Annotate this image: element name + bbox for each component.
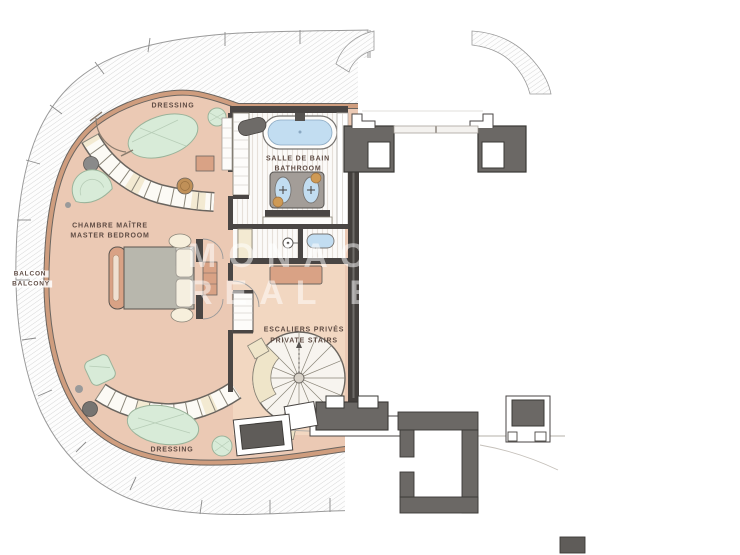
- double-vanity: [270, 172, 324, 208]
- bathtub: [263, 113, 337, 149]
- closet-strip: [222, 118, 232, 170]
- column-bottom-right: [506, 396, 550, 442]
- wall-stub: [196, 239, 203, 262]
- label-dressing-bottom: DRESSING: [151, 447, 194, 454]
- label-dressing-top: DRESSING: [152, 103, 195, 110]
- bedhead-wardrobe: [203, 262, 217, 295]
- side-table: [83, 402, 98, 417]
- label-escaliers-prives: ESCALIERS PRIVÉS: [264, 327, 344, 334]
- wc-tub: [307, 234, 334, 248]
- console-cabinet: [196, 156, 214, 171]
- wall-stub: [196, 295, 203, 319]
- label-private-stairs: PRIVATE STAIRS: [270, 338, 338, 345]
- label-chambre-maitre: CHAMBRE MAÎTRE: [72, 223, 148, 230]
- column-top-left: [344, 126, 394, 172]
- label-salle-de-bain: SALLE DE BAIN: [266, 156, 330, 163]
- bedside-table: [171, 308, 193, 322]
- label-bathroom: BATHROOM: [274, 166, 321, 173]
- exterior-mask-right: [358, 58, 740, 430]
- label-master-bedroom: MASTER BEDROOM: [70, 233, 149, 240]
- wc-closet: [238, 229, 252, 259]
- small-dot: [75, 385, 83, 393]
- terrace-unit-left: [233, 414, 292, 456]
- floor-plan-page: MONACO REAL ESTATE DRESSING SALLE DE BAI…: [0, 0, 740, 555]
- floor-plan-drawing: [0, 0, 740, 555]
- pillow: [176, 279, 193, 307]
- label-balcon: BALCON: [12, 271, 49, 278]
- wc-shower-room: [230, 224, 348, 264]
- bedside-table: [169, 234, 191, 248]
- bench: [270, 266, 322, 284]
- bathroom-top-wall: [230, 106, 348, 113]
- column-bottom-wall: [310, 396, 402, 436]
- small-dark-block: [560, 537, 585, 553]
- vanity-wall: [265, 210, 330, 217]
- wc-bottom-wall: [230, 258, 348, 264]
- small-dot: [65, 202, 71, 208]
- tub-faucet: [295, 113, 305, 121]
- wc-partition: [298, 227, 303, 259]
- column-top-right: [478, 126, 526, 172]
- hall-closet: [233, 292, 253, 332]
- pouf: [177, 178, 193, 194]
- pillow: [176, 249, 193, 277]
- label-balcony: BALCONY: [10, 281, 52, 288]
